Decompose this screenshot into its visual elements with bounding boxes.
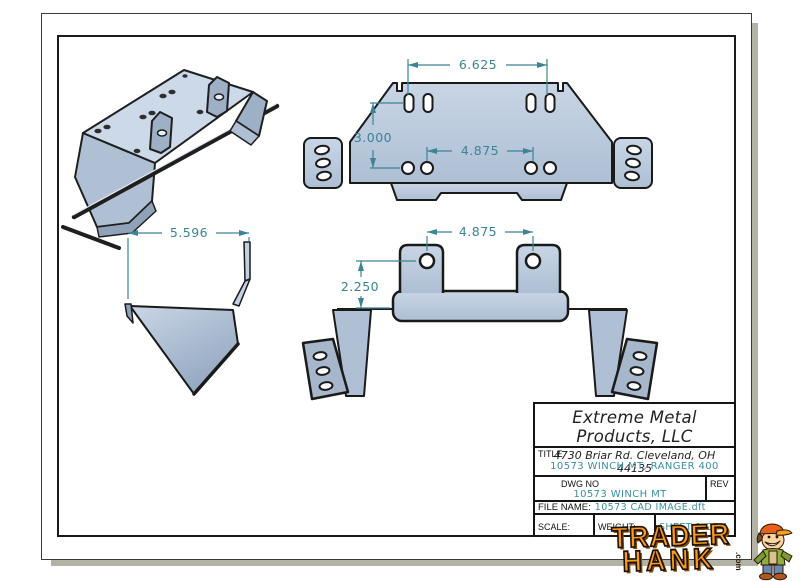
logo-dotcom: .com: [734, 552, 743, 571]
side-bend: [233, 279, 250, 306]
dim-plate-top-width: 6.625: [459, 57, 497, 72]
dim-plate-hole-height: 3.000: [354, 130, 392, 145]
dwg-no-label: DWG NO: [535, 477, 705, 489]
isometric-view: [63, 70, 277, 248]
side-view: [125, 242, 250, 394]
dim-plate-bottom-width: 4.875: [461, 143, 499, 158]
file-name-value: 10573 CAD IMAGE.dft: [591, 502, 706, 513]
title-label: TITLE: [538, 449, 563, 459]
traderhank-wordmark: TRADER HANK: [611, 521, 731, 576]
scale-label: SCALE:: [538, 522, 570, 532]
traderhank-mascot-icon: [746, 522, 800, 581]
bracket-left-tab: [400, 245, 443, 293]
title-block-title-row: TITLE 10573 WINCH MT, RANGER 400: [535, 446, 734, 475]
side-left-hem: [125, 304, 133, 323]
rev-label: REV: [707, 477, 734, 489]
title-block-file-row: FILE NAME: 10573 CAD IMAGE.dft: [535, 500, 734, 513]
side-upright-tab: [244, 242, 250, 281]
scale-cell: SCALE:: [535, 515, 593, 535]
dim-side-width: 5.596: [170, 225, 208, 240]
title-block-dwg-row: DWG NO 10573 WINCH MT REV: [535, 475, 734, 500]
bracket-front-view: [303, 245, 657, 399]
bracket-center-band: [393, 291, 568, 321]
dim-bracket-tab-height: 2.250: [341, 279, 379, 294]
bracket-right-tab: [517, 245, 560, 293]
logo-line-hank: HANK: [622, 544, 731, 577]
title-block: Extreme Metal Products, LLC 4730 Briar R…: [533, 402, 736, 537]
file-name-label: FILE NAME:: [535, 502, 591, 513]
traderhank-logo: TRADER HANK .com: [606, 522, 800, 581]
screenshot-root: 6.625 3.000 4.875 5.596: [0, 0, 800, 581]
title-value: 10573 WINCH MT, RANGER 400: [535, 461, 734, 472]
plate-bottom-tab: [391, 183, 567, 200]
side-plate: [130, 306, 238, 394]
side-view-dimensions: [128, 230, 249, 299]
dwg-no-cell: DWG NO 10573 WINCH MT: [535, 477, 705, 500]
title-block-company-row: Extreme Metal Products, LLC 4730 Briar R…: [535, 404, 734, 446]
dim-bracket-tab-spacing: 4.875: [459, 224, 497, 239]
dwg-no-value: 10573 WINCH MT: [535, 489, 705, 500]
company-name: Extreme Metal Products, LLC: [535, 408, 734, 446]
rev-cell: REV: [705, 477, 734, 500]
